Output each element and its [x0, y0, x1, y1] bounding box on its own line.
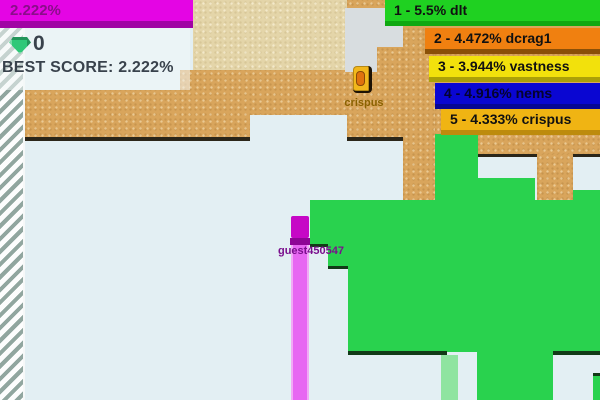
- territory-shadow-line: [593, 373, 600, 376]
- territory-shadow-line: [573, 154, 600, 157]
- player-crispus-skin: [356, 71, 365, 86]
- sand-territory-column: [537, 154, 573, 200]
- grey-territory-block: [345, 8, 377, 72]
- leaderboard-row-4: 4 - 4.916% nems: [435, 83, 600, 104]
- leaderboard-row-2-border: [425, 49, 600, 54]
- leaderboard-row-2: 2 - 4.472% dcrag1: [425, 28, 600, 49]
- territory-shadow-line: [553, 351, 600, 355]
- player-name-label: guest450547: [271, 245, 351, 257]
- territory-shadow-line: [347, 137, 403, 141]
- leaderboard-row-1-border: [385, 21, 600, 26]
- leaderboard-row-3-border: [429, 77, 600, 82]
- green-trail: [441, 355, 458, 400]
- player-name-label: crispus: [338, 97, 390, 109]
- green-territory-main: [310, 200, 600, 244]
- leaderboard-row-5: 5 - 4.333% crispus: [441, 109, 600, 130]
- territory-shadow-line: [348, 351, 447, 355]
- territory-shadow-line: [25, 137, 250, 141]
- player-guest-block-shadow: [290, 238, 310, 245]
- green-territory-main: [348, 266, 600, 352]
- sand-territory-block: [25, 90, 250, 137]
- territory-shadow-line: [478, 154, 537, 157]
- score-percent: 2.222%: [10, 2, 61, 19]
- player-crispus-block: [353, 66, 372, 93]
- score-bar-border: [0, 21, 193, 28]
- green-territory-main: [328, 244, 600, 266]
- player-guest-block: [291, 216, 309, 238]
- green-territory-strip: [435, 134, 478, 208]
- green-territory-block: [593, 376, 600, 400]
- sand-territory-light: [193, 0, 347, 70]
- gem-counter: 0: [33, 32, 45, 56]
- territory-shadow-line: [328, 266, 348, 269]
- leaderboard-row-5-border: [441, 130, 600, 135]
- best-score-label: BEST SCORE: 2.222%: [2, 59, 174, 77]
- leaderboard-row-1: 1 - 5.5% dlt: [385, 0, 600, 21]
- game-viewport[interactable]: guest450547 crispus 2.222% 0 BEST SCORE:…: [0, 0, 600, 400]
- leaderboard-row-3: 3 - 3.944% vastness: [429, 56, 600, 77]
- player-trail: [291, 243, 309, 400]
- green-territory-block: [477, 352, 553, 400]
